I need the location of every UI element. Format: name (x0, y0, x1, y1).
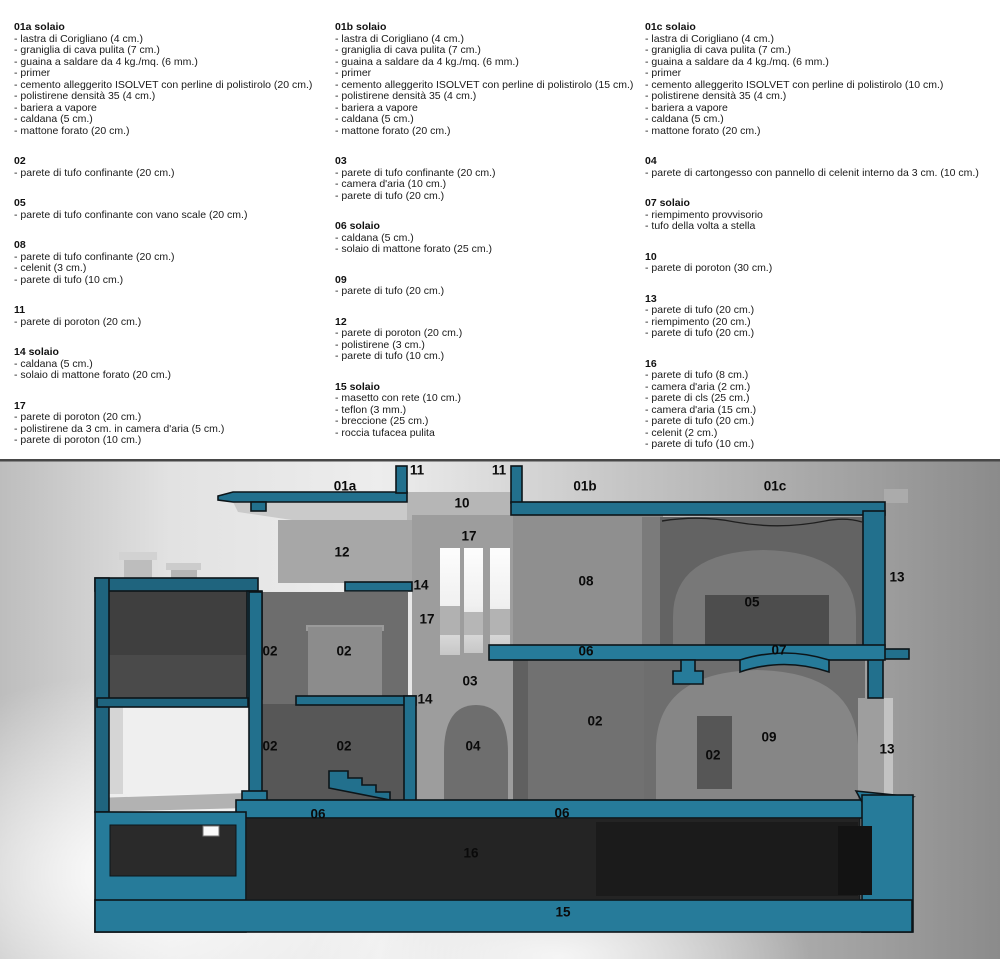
section-label-06-26: 06 (310, 807, 326, 822)
left-house-roof (95, 578, 258, 591)
section-label-16-28: 16 (463, 846, 479, 861)
section-label-05-10: 05 (744, 595, 760, 610)
legend-block-heading: 08 (14, 240, 324, 252)
legend-block-heading: 07 solaio (645, 198, 995, 210)
top-border-line (0, 459, 1000, 462)
mid-door-panel (308, 627, 382, 697)
legend-item: - solaio di mattone forato (25 cm.) (335, 244, 635, 256)
roof-slab-01a (218, 492, 407, 502)
legend-block-12: 12- parete di poroton (20 cm.)- polistir… (335, 317, 635, 363)
section-label-02-22: 02 (336, 739, 351, 754)
window (464, 548, 483, 653)
section-label-01b-3: 01b (573, 479, 596, 494)
base-slab-15 (95, 900, 912, 932)
legend-item: - parete di tufo (20 cm.) (335, 286, 635, 298)
section-drawing: 01a111101b01c101712140805131702020607031… (0, 459, 1000, 959)
section-label-09-23: 09 (761, 730, 776, 745)
legend-item: - guaina a saldare da 4 kg./mq. (6 mm.) (645, 57, 995, 69)
parapet-post-11 (396, 466, 407, 493)
legend-item: - masetto con rete (10 cm.) (335, 393, 635, 405)
legend-block-14: 14 solaio- caldana (5 cm.)- solaio di ma… (14, 347, 324, 382)
mid-house-left-wall (249, 592, 262, 804)
parapet-post-11 (511, 466, 522, 503)
room-02-ground (513, 660, 644, 800)
section-label-08-9: 08 (578, 574, 594, 589)
legend-item: - parete di tufo (10 cm.) (335, 351, 635, 363)
chimney-cap (119, 552, 157, 560)
section-label-02-21: 02 (262, 739, 277, 754)
legend-item: - polistirene densità 35 (4 cm.) (14, 91, 324, 103)
legend-item: - graniglia di cava pulita (7 cm.) (645, 45, 995, 57)
legend-item: - caldana (5 cm.) (645, 114, 995, 126)
legend-item: - parete di tufo confinante (20 cm.) (14, 168, 324, 180)
legend-item: - graniglia di cava pulita (7 cm.) (335, 45, 635, 57)
legend-item: - caldana (5 cm.) (14, 114, 324, 126)
room-02-ground-shade (513, 660, 528, 800)
legend-item: - polistirene densità 35 (4 cm.) (645, 91, 995, 103)
window (490, 548, 510, 653)
window (440, 548, 460, 655)
legend-item: - parete di tufo (20 cm.) (645, 328, 995, 340)
legend-item: - graniglia di cava pulita (7 cm.) (14, 45, 324, 57)
legend-item: - parete di poroton (30 cm.) (645, 263, 995, 275)
legend-block-heading: 11 (14, 305, 324, 317)
legend-item: - parete di tufo (8 cm.) (645, 370, 995, 382)
floor-slab-14-lower (296, 696, 416, 705)
legend-item: - parete di tufo (10 cm.) (645, 439, 995, 451)
legend-block-heading: 01c solaio (645, 22, 995, 34)
legend-block-heading: 04 (645, 156, 995, 168)
section-label-17-12: 17 (419, 612, 434, 627)
legend-column-left: 01a solaio- lastra di Corigliano (4 cm.)… (14, 22, 324, 466)
legend-block-heading: 14 solaio (14, 347, 324, 359)
legend-block-05: 05- parete di tufo confinante con vano s… (14, 198, 324, 221)
roof-slab-01b-01c (511, 502, 885, 515)
legend-block-15: 15 solaio- masetto con rete (10 cm.)- te… (335, 382, 635, 440)
roof-01a-tab (251, 502, 266, 511)
legend-item: - camera d'aria (10 cm.) (335, 179, 635, 191)
left-house-outer-wall (95, 578, 109, 812)
legend-block-01c: 01c solaio- lastra di Corigliano (4 cm.)… (645, 22, 995, 137)
legend-item: - breccione (25 cm.) (335, 416, 635, 428)
legend-block-heading: 02 (14, 156, 324, 168)
section-label-03-17: 03 (462, 674, 478, 689)
chimney (124, 560, 152, 580)
room-05-inner-shade (705, 595, 829, 650)
legend-block-06: 06 solaio- caldana (5 cm.)- solaio di ma… (335, 221, 635, 256)
legend-column-right: 01c solaio- lastra di Corigliano (4 cm.)… (645, 22, 995, 470)
legend-block-03: 03- parete di tufo confinante (20 cm.)- … (335, 156, 635, 202)
small-basement-window (203, 826, 219, 836)
legend-item: - polistirene densità 35 (4 cm.) (335, 91, 635, 103)
wall-13-upper (863, 511, 885, 647)
materials-legend: 01a solaio- lastra di Corigliano (4 cm.)… (0, 0, 1000, 459)
legend-block-01b: 01b solaio- lastra di Corigliano (4 cm.)… (335, 22, 635, 137)
window-sill (440, 606, 460, 635)
section-label-02-14: 02 (336, 644, 351, 659)
roof-edge-right (884, 489, 908, 503)
legend-item: - primer (14, 68, 324, 80)
floor-slab-14-upper (345, 582, 412, 591)
legend-item: - parete di poroton (20 cm.) (335, 328, 635, 340)
page: 01a solaio- lastra di Corigliano (4 cm.)… (0, 0, 1000, 959)
legend-block-heading: 01b solaio (335, 22, 635, 34)
legend-block-02: 02- parete di tufo confinante (20 cm.) (14, 156, 324, 179)
legend-item: - parete di cartongesso con pannello di … (645, 168, 995, 180)
floor-slab-06-ground (236, 800, 912, 818)
basement-inner-shade (596, 822, 858, 896)
legend-item: - caldana (5 cm.) (335, 114, 635, 126)
legend-block-17: 17- parete di poroton (20 cm.)- polistir… (14, 401, 324, 447)
legend-block-11: 11- parete di poroton (20 cm.) (14, 305, 324, 328)
section-label-06-15: 06 (578, 644, 594, 659)
legend-item: - tufo della volta a stella (645, 221, 995, 233)
section-label-11-2: 11 (492, 463, 507, 478)
legend-item: - parete di tufo (10 cm.) (14, 275, 324, 287)
legend-block-heading: 06 solaio (335, 221, 635, 233)
section-label-02-24: 02 (705, 748, 720, 763)
legend-item: - parete di tufo (20 cm.) (645, 305, 995, 317)
legend-item: - primer (335, 68, 635, 80)
legend-block-07: 07 solaio- riempimento provvisorio- tufo… (645, 198, 995, 233)
legend-item: - guaina a saldare da 4 kg./mq. (6 mm.) (335, 57, 635, 69)
legend-block-10: 10- parete di poroton (30 cm.) (645, 252, 995, 275)
room-08-corner-shade (642, 517, 663, 650)
legend-block-08: 08- parete di tufo confinante (20 cm.)- … (14, 240, 324, 286)
legend-item: - parete di tufo confinante con vano sca… (14, 210, 324, 222)
legend-item: - parete di tufo (20 cm.) (645, 416, 995, 428)
legend-block-01a: 01a solaio- lastra di Corigliano (4 cm.)… (14, 22, 324, 137)
legend-block-heading: 01a solaio (14, 22, 324, 34)
legend-item: - guaina a saldare da 4 kg./mq. (6 mm.) (14, 57, 324, 69)
legend-item: - parete di poroton (10 cm.) (14, 435, 324, 447)
legend-item: - parete di cls (25 cm.) (645, 393, 995, 405)
legend-block-16: 16- parete di tufo (8 cm.)- camera d'ari… (645, 359, 995, 451)
window-sill (464, 612, 483, 635)
legend-item: - mattone forato (20 cm.) (645, 126, 995, 138)
left-house-floor (97, 698, 248, 707)
section-label-12-7: 12 (334, 545, 349, 560)
legend-item: - mattone forato (20 cm.) (335, 126, 635, 138)
section-label-06-27: 06 (554, 806, 570, 821)
legend-item: - celenit (3 cm.) (14, 263, 324, 275)
legend-block-04: 04- parete di cartongesso con pannello d… (645, 156, 995, 179)
legend-item: - parete di tufo (20 cm.) (335, 191, 635, 203)
legend-block-13: 13- parete di tufo (20 cm.)- riempimento… (645, 294, 995, 340)
section-label-15-29: 15 (555, 905, 571, 920)
section-label-13-11: 13 (889, 570, 905, 585)
section-label-10-5: 10 (454, 496, 469, 511)
legend-column-middle: 01b solaio- lastra di Corigliano (4 cm.)… (335, 22, 635, 458)
section-label-11-1: 11 (410, 463, 425, 478)
section-label-13-25: 13 (879, 742, 895, 757)
legend-item: - parete di poroton (20 cm.) (14, 412, 324, 424)
section-label-14-8: 14 (413, 578, 429, 593)
building-section-render: 01a111101b01c101712140805131702020607031… (0, 459, 1000, 959)
section-label-07-16: 07 (771, 643, 786, 658)
section-label-01c-4: 01c (764, 479, 787, 494)
mid-house-right-wall (404, 696, 416, 802)
section-label-04-20: 04 (465, 739, 481, 754)
legend-block-09: 09- parete di tufo (20 cm.) (335, 275, 635, 298)
section-label-17-6: 17 (461, 529, 476, 544)
legend-item: - mattone forato (20 cm.) (14, 126, 324, 138)
window-sill (490, 609, 510, 635)
wall-13-tab (883, 649, 909, 659)
room-09-vault (656, 670, 858, 800)
floor-slab-06-07 (489, 645, 885, 660)
legend-item: - parete di poroton (20 cm.) (14, 317, 324, 329)
section-label-01a-0: 01a (334, 479, 357, 494)
section-label-02-19: 02 (587, 714, 602, 729)
chimney-cap (166, 563, 201, 570)
legend-item: - roccia tufacea pulita (335, 428, 635, 440)
section-label-02-13: 02 (262, 644, 277, 659)
left-upper-room-floor-shade (107, 655, 248, 698)
legend-item: - primer (645, 68, 995, 80)
legend-block-heading: 03 (335, 156, 635, 168)
left-lower-room (107, 707, 247, 794)
basement-doorway (838, 826, 872, 895)
section-label-14-18: 14 (417, 692, 433, 707)
legend-item: - solaio di mattone forato (20 cm.) (14, 370, 324, 382)
legend-block-heading: 05 (14, 198, 324, 210)
